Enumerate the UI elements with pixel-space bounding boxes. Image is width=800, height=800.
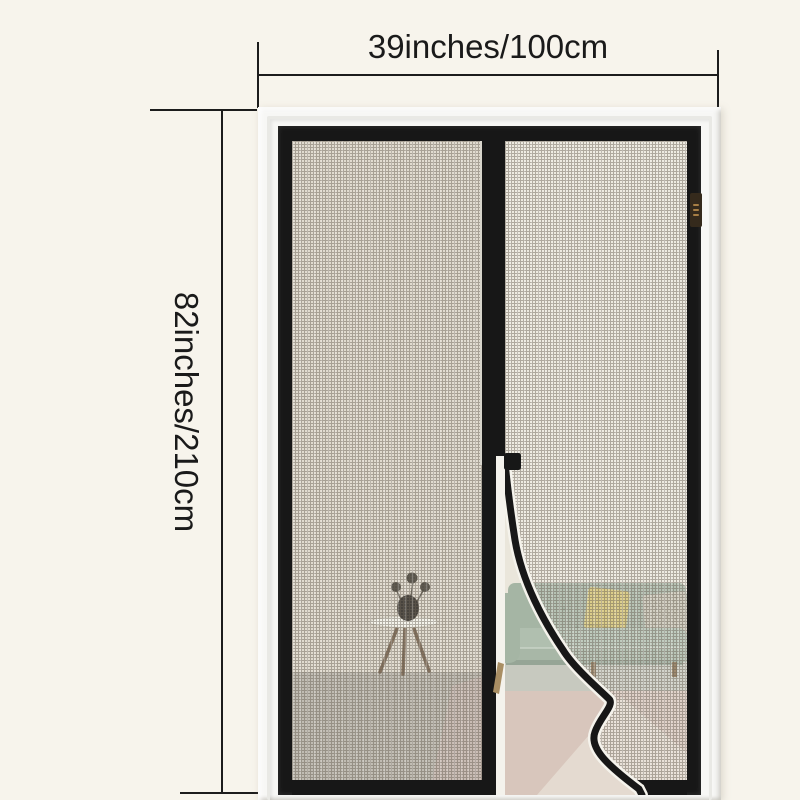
magnet-pull-tab [504, 453, 521, 470]
left-panel-edge-binding [496, 456, 505, 795]
mesh-texture-left [292, 141, 482, 780]
magnetic-seam [482, 141, 505, 465]
screen-door-black-frame [278, 126, 701, 795]
width-dimension-line [258, 74, 718, 76]
left-panel-room-view [292, 141, 482, 780]
right-room-view [494, 141, 687, 795]
height-dimension-tick-bottom [180, 792, 258, 794]
brand-tag-mark [693, 209, 699, 211]
door-frame [258, 107, 721, 800]
height-dimension-line [221, 110, 223, 794]
seam-highlight [480, 141, 482, 465]
width-dimension-tick-left [257, 42, 259, 108]
brand-tag [690, 193, 702, 227]
width-dimension-tick-right [717, 50, 719, 108]
brand-tag-mark [693, 204, 699, 206]
left-panel-bottom-bar [292, 780, 496, 795]
height-dimension-tick-top [150, 109, 257, 111]
brand-tag-mark [693, 214, 699, 216]
left-panel-edge-border [482, 456, 496, 795]
width-dimension-label: 39inches/100cm [368, 28, 608, 66]
height-dimension-label: 82inches/210cm [167, 292, 205, 532]
screen-door-scene [292, 141, 687, 795]
